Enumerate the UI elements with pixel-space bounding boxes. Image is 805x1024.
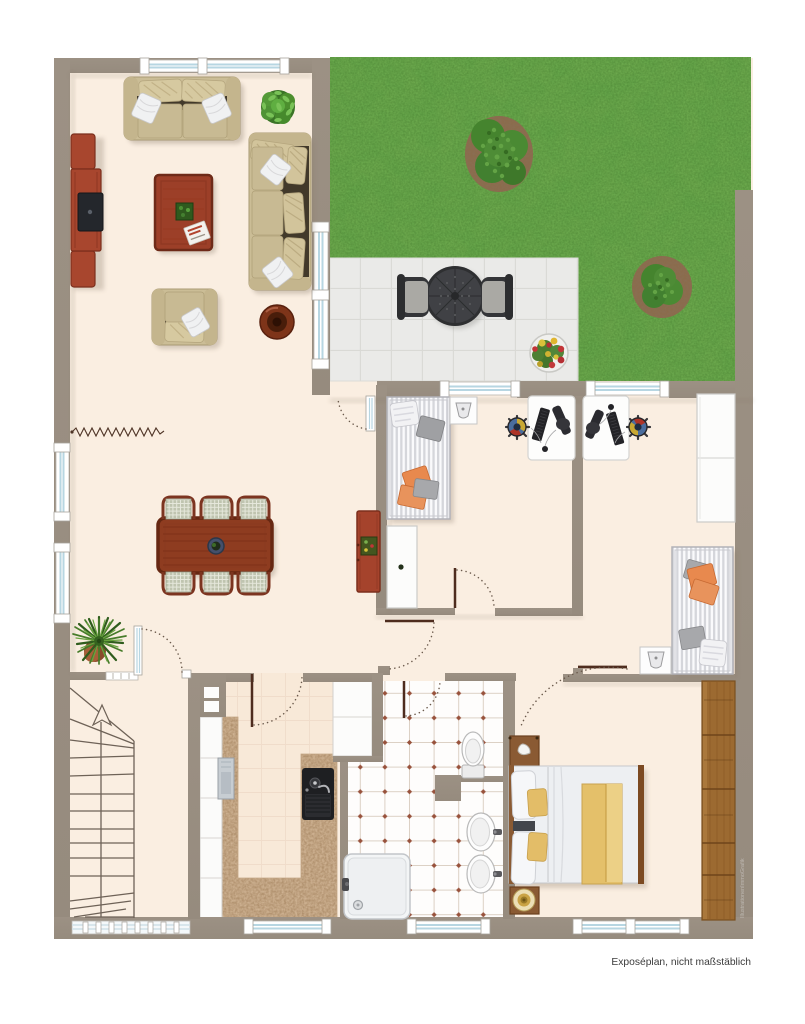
svg-text:Exposéplan, nicht maßstäblich: Exposéplan, nicht maßstäblich — [611, 957, 751, 968]
svg-text:IllustrationenImmoGrafik: IllustrationenImmoGrafik — [740, 858, 746, 918]
